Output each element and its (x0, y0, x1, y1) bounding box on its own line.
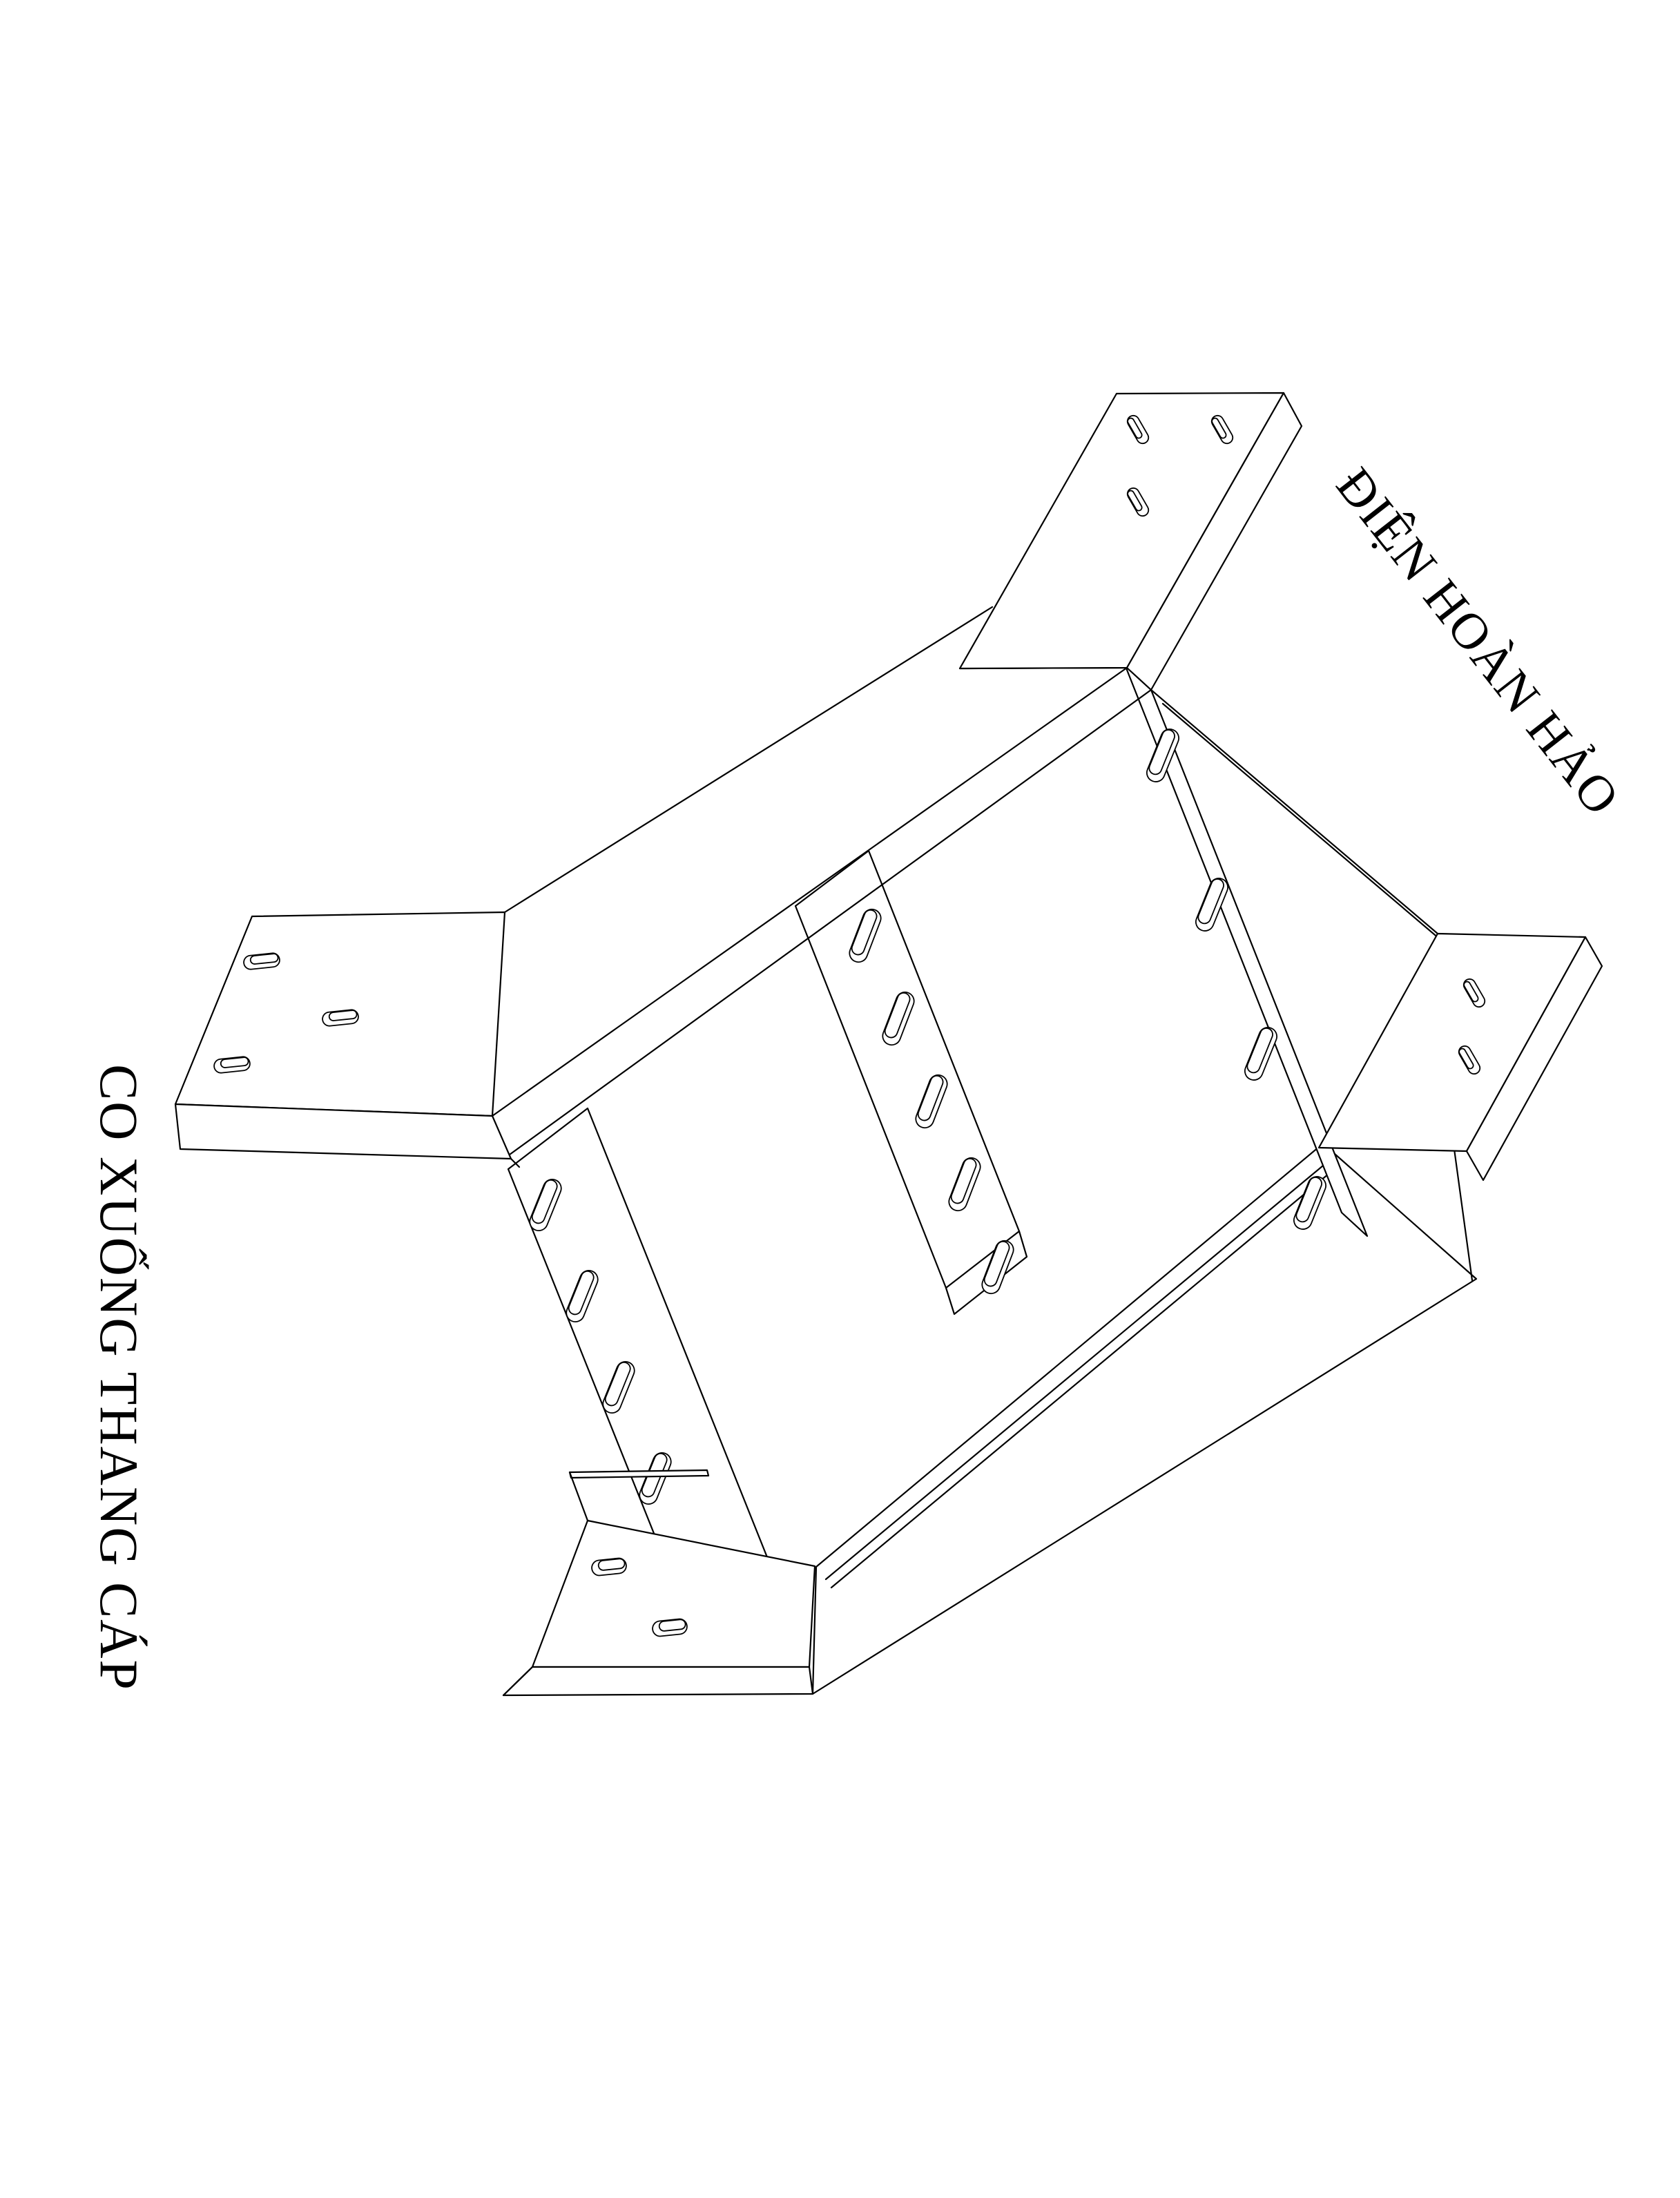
bolt-slot (652, 1618, 688, 1637)
isometric-line-art (175, 393, 1602, 1695)
cable-ladder-elbow-drawing (0, 0, 1680, 2198)
far-joint-rail (1126, 666, 1367, 1236)
middle-joint-rail (795, 851, 1027, 1314)
drawing-page: ĐIỆN HOÀN HẢO CO XUỐNG THANG CÁP (0, 0, 1680, 2198)
lower-end-flange (1319, 934, 1602, 1180)
upper-end-flange (960, 393, 1302, 690)
left-end-flange (175, 912, 511, 1159)
lower-run-channel (813, 1144, 1476, 1694)
bolt-slot (591, 1557, 627, 1576)
product-title-label: CO XUỐNG THANG CÁP (88, 1064, 150, 1691)
bolt-slot (1242, 1025, 1280, 1083)
